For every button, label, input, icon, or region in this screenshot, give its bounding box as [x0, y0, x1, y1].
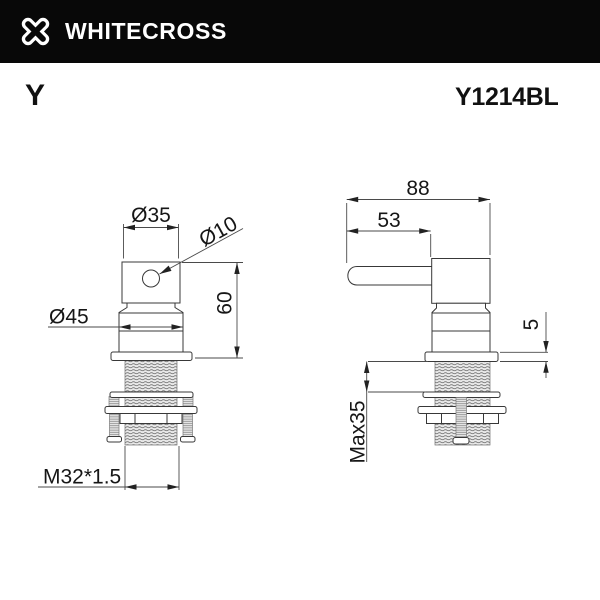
front-view: Ø35 Ø10 Ø45 60 [38, 204, 243, 490]
thread-rod-upper [125, 361, 177, 393]
washer [423, 392, 500, 398]
screw-foot-right [181, 437, 196, 443]
deck-plate [111, 352, 192, 361]
dimension-label: 53 [377, 209, 400, 232]
thread-rod-upper [435, 362, 490, 393]
dimension-total-depth: 88 [347, 177, 490, 263]
dimension-max-mounting-thickness: Max35 [347, 362, 429, 464]
nut-flange-plate [105, 407, 197, 414]
collar [432, 313, 490, 352]
side-view: 88 53 5 [347, 177, 549, 464]
screw-foot-left [107, 437, 122, 443]
dimension-height: 60 [182, 263, 243, 359]
mounting-screw-left [110, 414, 120, 437]
thread-rod-middle [125, 398, 177, 407]
dimension-label: 88 [406, 177, 429, 200]
screw-foot [453, 438, 469, 445]
dimension-label: M32*1.5 [43, 466, 121, 489]
deck-plate [425, 352, 498, 362]
collar [119, 313, 183, 352]
dimension-label: Max35 [347, 400, 370, 463]
hex-nut [120, 414, 182, 424]
dimension-label: 60 [214, 291, 237, 314]
dimension-label: Ø45 [49, 306, 89, 329]
drawing-canvas: Ø35 Ø10 Ø45 60 [0, 0, 600, 600]
pin-hole [143, 270, 160, 287]
lever-handle [348, 267, 432, 286]
dimension-label: Ø10 [195, 212, 241, 251]
dimension-lever-length: 53 [347, 209, 431, 257]
dimension-label: 5 [520, 319, 543, 331]
dimension-label: Ø35 [131, 204, 171, 227]
mounting-screw-right [183, 414, 193, 437]
dimension-thread-spec: M32*1.5 [38, 446, 179, 490]
thread-rod-lower [125, 424, 177, 446]
mounting-screw-center [456, 398, 467, 438]
neck [119, 303, 183, 313]
technical-drawing-page: WHITECROSS Y Y1214BL [0, 0, 600, 600]
dimension-handle-width: Ø35 [124, 204, 179, 259]
washer [110, 392, 193, 398]
valve-body [432, 259, 490, 304]
dimension-plate-thickness: 5 [500, 312, 549, 378]
neck [432, 303, 490, 313]
